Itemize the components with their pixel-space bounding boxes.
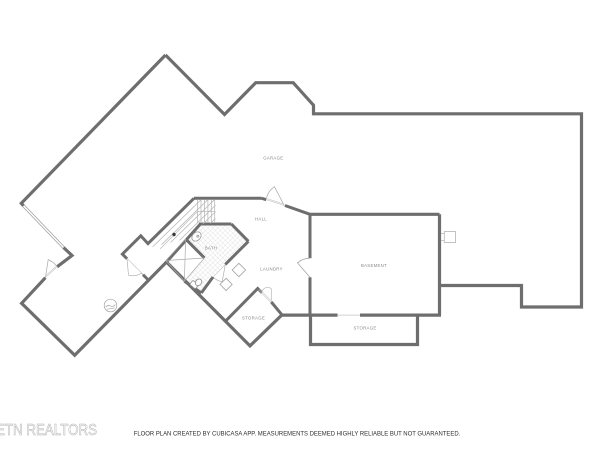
- svg-text:BASEMENT: BASEMENT: [361, 263, 387, 268]
- svg-text:STORAGE: STORAGE: [242, 315, 265, 320]
- svg-text:STORAGE: STORAGE: [353, 325, 376, 330]
- svg-text:LAUNDRY: LAUNDRY: [260, 267, 283, 272]
- svg-text:HALL: HALL: [255, 217, 267, 222]
- svg-text:BATH: BATH: [205, 245, 217, 250]
- svg-text:GARAGE: GARAGE: [263, 155, 283, 160]
- svg-text:FLOOR PLAN CREATED BY CUBICASA: FLOOR PLAN CREATED BY CUBICASA APP. MEAS…: [134, 431, 461, 437]
- svg-text:ETN REALTORS: ETN REALTORS: [0, 422, 97, 439]
